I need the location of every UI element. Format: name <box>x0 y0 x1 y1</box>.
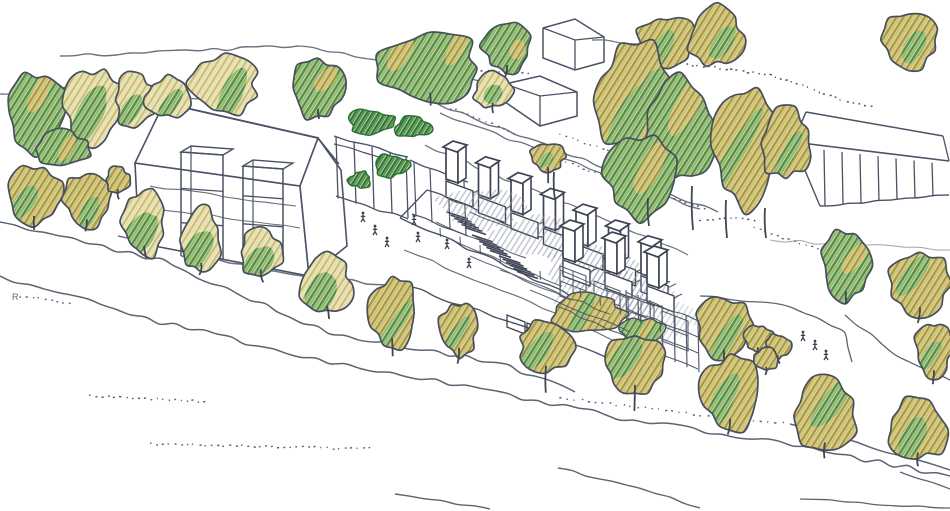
svg-text:R: R <box>12 292 19 302</box>
